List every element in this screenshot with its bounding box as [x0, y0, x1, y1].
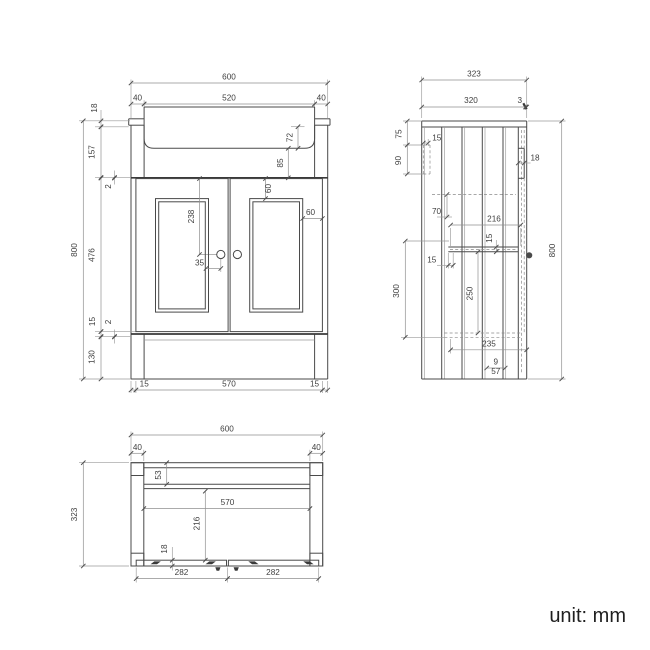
dim-label: 15 [485, 233, 494, 243]
dim-label: 157 [88, 145, 97, 159]
dim-label: 53 [154, 470, 163, 480]
dim-label: 60 [264, 184, 273, 194]
door-knob-icon [233, 250, 241, 258]
dim-label: 35 [195, 258, 205, 267]
view-plan-view: 60040403235357021618282282 [70, 424, 325, 582]
dim-label: 2 [104, 319, 113, 324]
dim-label: 570 [222, 380, 236, 389]
dim-label: 600 [220, 424, 234, 433]
dim-label: 476 [88, 248, 97, 262]
drawing-mark [234, 567, 239, 571]
dim-label: 300 [392, 284, 401, 298]
dim-label: 15 [432, 134, 442, 143]
dim-label: 40 [133, 94, 143, 103]
dim-label: 18 [90, 103, 99, 113]
dim-label: 323 [467, 70, 481, 79]
dim-label: 57 [491, 367, 501, 376]
view-side-section: 323320375901570182161515300250235578009 [392, 70, 566, 382]
door-knob-icon [217, 250, 225, 258]
dim-label: 600 [222, 73, 236, 82]
dim-label: 216 [487, 214, 501, 223]
dim-label: 570 [221, 498, 235, 507]
dim-label: 40 [133, 443, 143, 452]
dim-label: 282 [175, 568, 189, 577]
dim-label: 520 [222, 94, 236, 103]
dim-label: 282 [266, 568, 280, 577]
dim-label: 3 [518, 96, 523, 105]
dim-label: 70 [432, 207, 442, 216]
dim-label: 216 [193, 516, 202, 530]
dim-label: 323 [70, 507, 79, 521]
dim-label: 15 [88, 317, 97, 327]
view-front-elevation: 6004052040800181574761513022728523835606… [70, 73, 330, 394]
dim-label: 75 [394, 129, 403, 139]
dim-label: 800 [70, 243, 79, 257]
drawing-mark [151, 561, 161, 564]
knob-side-icon [527, 253, 532, 258]
unit-note: unit: mm [549, 605, 626, 628]
drawing-mark [248, 561, 258, 564]
drawing-rect [228, 560, 318, 566]
dim-label: 15 [140, 380, 150, 389]
dim-label: 238 [187, 209, 196, 223]
dim-label: 72 [286, 133, 295, 143]
dim-label: 800 [548, 243, 557, 257]
drawing-rect [131, 463, 144, 476]
drawing-rect [156, 199, 209, 313]
dim-label: 15 [427, 256, 437, 265]
dim-label: 40 [312, 443, 322, 452]
dim-label: 85 [276, 158, 285, 168]
technical-drawing-svg: 6004052040800181574761513022728523835606… [0, 0, 650, 650]
dim-label: 90 [394, 156, 403, 166]
drawing-mark [206, 561, 216, 564]
dim-label: 60 [306, 208, 316, 217]
dim-label: 15 [310, 380, 320, 389]
drawing-rect [131, 553, 144, 566]
dim-label: 250 [465, 286, 474, 300]
drawing-rect [253, 202, 300, 309]
drawing-rect [250, 199, 303, 313]
dim-label: 18 [530, 154, 540, 163]
dim-label: 130 [88, 350, 97, 364]
dim-label: 2 [104, 184, 113, 189]
drawing-mark [215, 567, 220, 571]
drawing-rect [310, 463, 323, 476]
dim-label: 9 [494, 358, 499, 367]
dim-label: 320 [464, 96, 478, 105]
dim-label: 18 [160, 544, 169, 554]
dim-label: 40 [317, 94, 327, 103]
technical-drawing-page: 6004052040800181574761513022728523835606… [0, 0, 650, 650]
dim-label: 235 [482, 339, 496, 348]
drawing-mark [303, 561, 313, 564]
